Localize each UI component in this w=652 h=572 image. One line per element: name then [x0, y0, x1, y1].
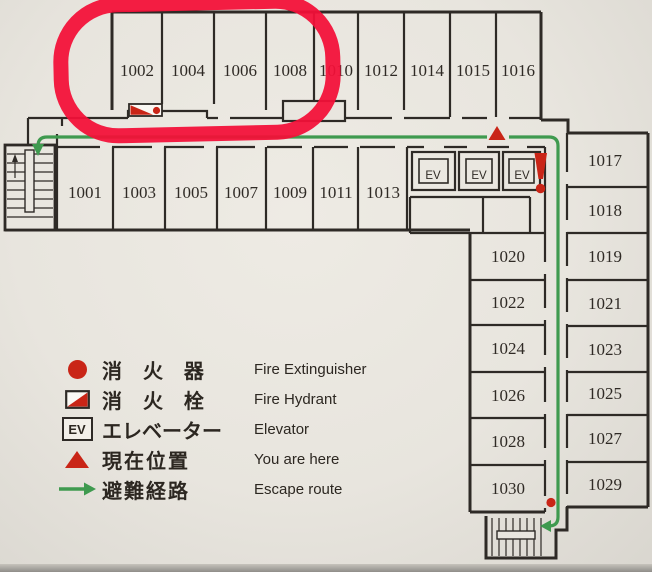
elevator-2-label: EV	[471, 170, 487, 182]
legend-jp-fire-extinguisher: 消 火 器	[102, 355, 254, 384]
room-1001-label: 1001	[68, 183, 102, 202]
room-1029-label: 1029	[588, 475, 622, 494]
room-1006-label: 1006	[223, 61, 257, 80]
room-1004-label: 1004	[171, 61, 206, 80]
room-1009-label: 1009	[273, 183, 307, 202]
room-1023-label: 1023	[588, 340, 622, 359]
legend-row-escape-route: 避難経路 Escape route	[52, 474, 382, 504]
room-1022-label: 1022	[491, 293, 525, 312]
elevator-icon: EV	[62, 417, 93, 441]
fire-extinguisher-marker-top	[153, 107, 160, 114]
room-1016-label: 1016	[501, 61, 535, 80]
room-1027-label: 1027	[588, 429, 623, 448]
legend-jp-you-are-here: 現在位置	[102, 445, 254, 474]
room-1024-label: 1024	[491, 339, 526, 358]
legend-row-fire-hydrant: 消 火 栓 Fire Hydrant	[52, 384, 382, 414]
room-1002-label: 1002	[120, 61, 154, 80]
photo-bottom-edge	[0, 564, 652, 572]
room-1007-label: 1007	[224, 183, 259, 202]
legend-jp-fire-hydrant: 消 火 栓	[102, 385, 254, 414]
room-1026-label: 1026	[491, 386, 525, 405]
room-1015-label: 1015	[456, 61, 490, 80]
room-1018-label: 1018	[588, 201, 622, 220]
room-1013-label: 1013	[366, 183, 400, 202]
legend-jp-elevator: エレベーター	[102, 415, 254, 444]
legend-row-elevator: EV エレベーター Elevator	[52, 414, 382, 444]
room-1011-label: 1011	[319, 183, 352, 202]
legend-en-elevator: Elevator	[254, 421, 309, 438]
room-1008-label: 1008	[273, 61, 307, 80]
stairs-northwest	[5, 145, 55, 230]
elevator-3-label: EV	[514, 170, 530, 182]
fire-extinguisher-marker-south	[546, 498, 555, 507]
legend-en-you-are-here: You are here	[254, 451, 339, 468]
stairs-south	[492, 518, 541, 556]
fire-hydrant-marker	[129, 104, 162, 116]
elevator-1-label: EV	[425, 170, 441, 182]
room-1017-label: 1017	[588, 151, 623, 170]
legend-en-fire-extinguisher: Fire Extinguisher	[254, 361, 367, 378]
room-1030-label: 1030	[491, 479, 525, 498]
room-1028-label: 1028	[491, 432, 525, 451]
legend-row-you-are-here: 現在位置 You are here	[52, 444, 382, 474]
fire-extinguisher-marker-east	[536, 184, 545, 193]
room-1021-label: 1021	[588, 294, 622, 313]
escape-route-icon	[57, 480, 97, 498]
legend: 消 火 器 Fire Extinguisher 消 火 栓 Fire Hydra…	[52, 354, 382, 504]
room-1014-label: 1014	[410, 61, 445, 80]
fire-extinguisher-icon	[68, 360, 87, 379]
evacuation-floor-map: EV EV EV 1002 1004 1006 1008	[0, 0, 652, 572]
room-1003-label: 1003	[122, 183, 156, 202]
room-1012-label: 1012	[364, 61, 398, 80]
legend-en-escape-route: Escape route	[254, 481, 342, 498]
fire-hydrant-icon	[65, 390, 90, 409]
legend-en-fire-hydrant: Fire Hydrant	[254, 391, 337, 408]
legend-jp-escape-route: 避難経路	[102, 475, 254, 504]
you-are-here-icon	[64, 449, 90, 469]
elevator-bank: EV EV EV	[412, 152, 540, 190]
room-1019-label: 1019	[588, 247, 622, 266]
you-are-here-marker	[489, 126, 506, 140]
legend-row-fire-extinguisher: 消 火 器 Fire Extinguisher	[52, 354, 382, 384]
room-1005-label: 1005	[174, 183, 208, 202]
room-1020-label: 1020	[491, 247, 525, 266]
escape-arrow-left	[540, 520, 551, 532]
room-1025-label: 1025	[588, 384, 622, 403]
